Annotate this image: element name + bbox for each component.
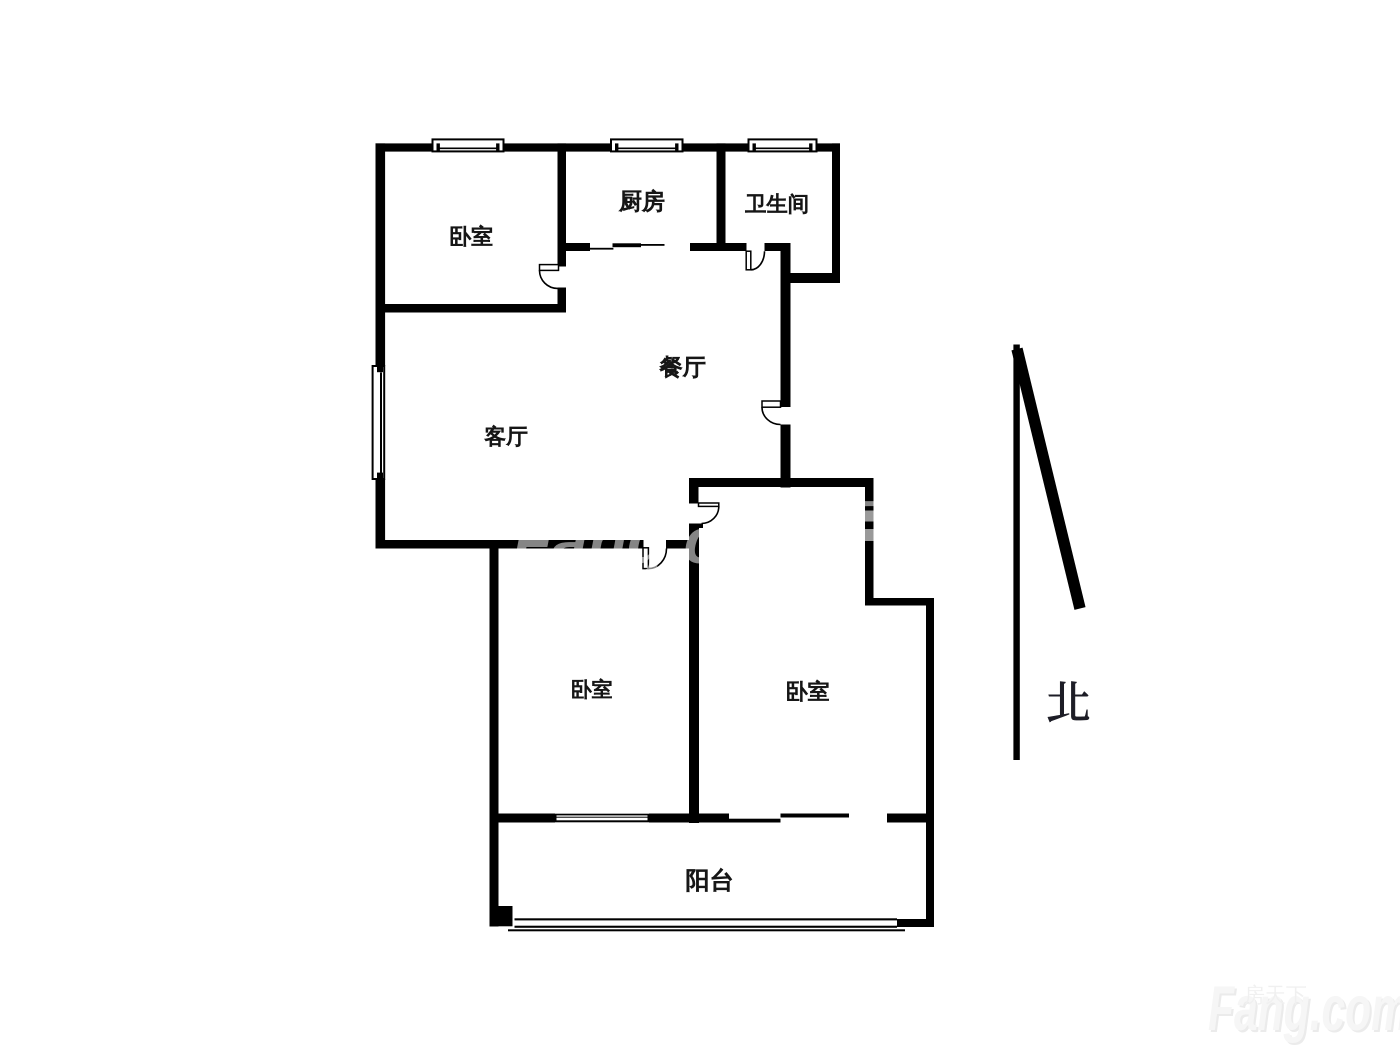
svg-text:Fang.com: Fang.com <box>513 505 815 577</box>
svg-text:Fang.com: Fang.com <box>1208 974 1400 1044</box>
